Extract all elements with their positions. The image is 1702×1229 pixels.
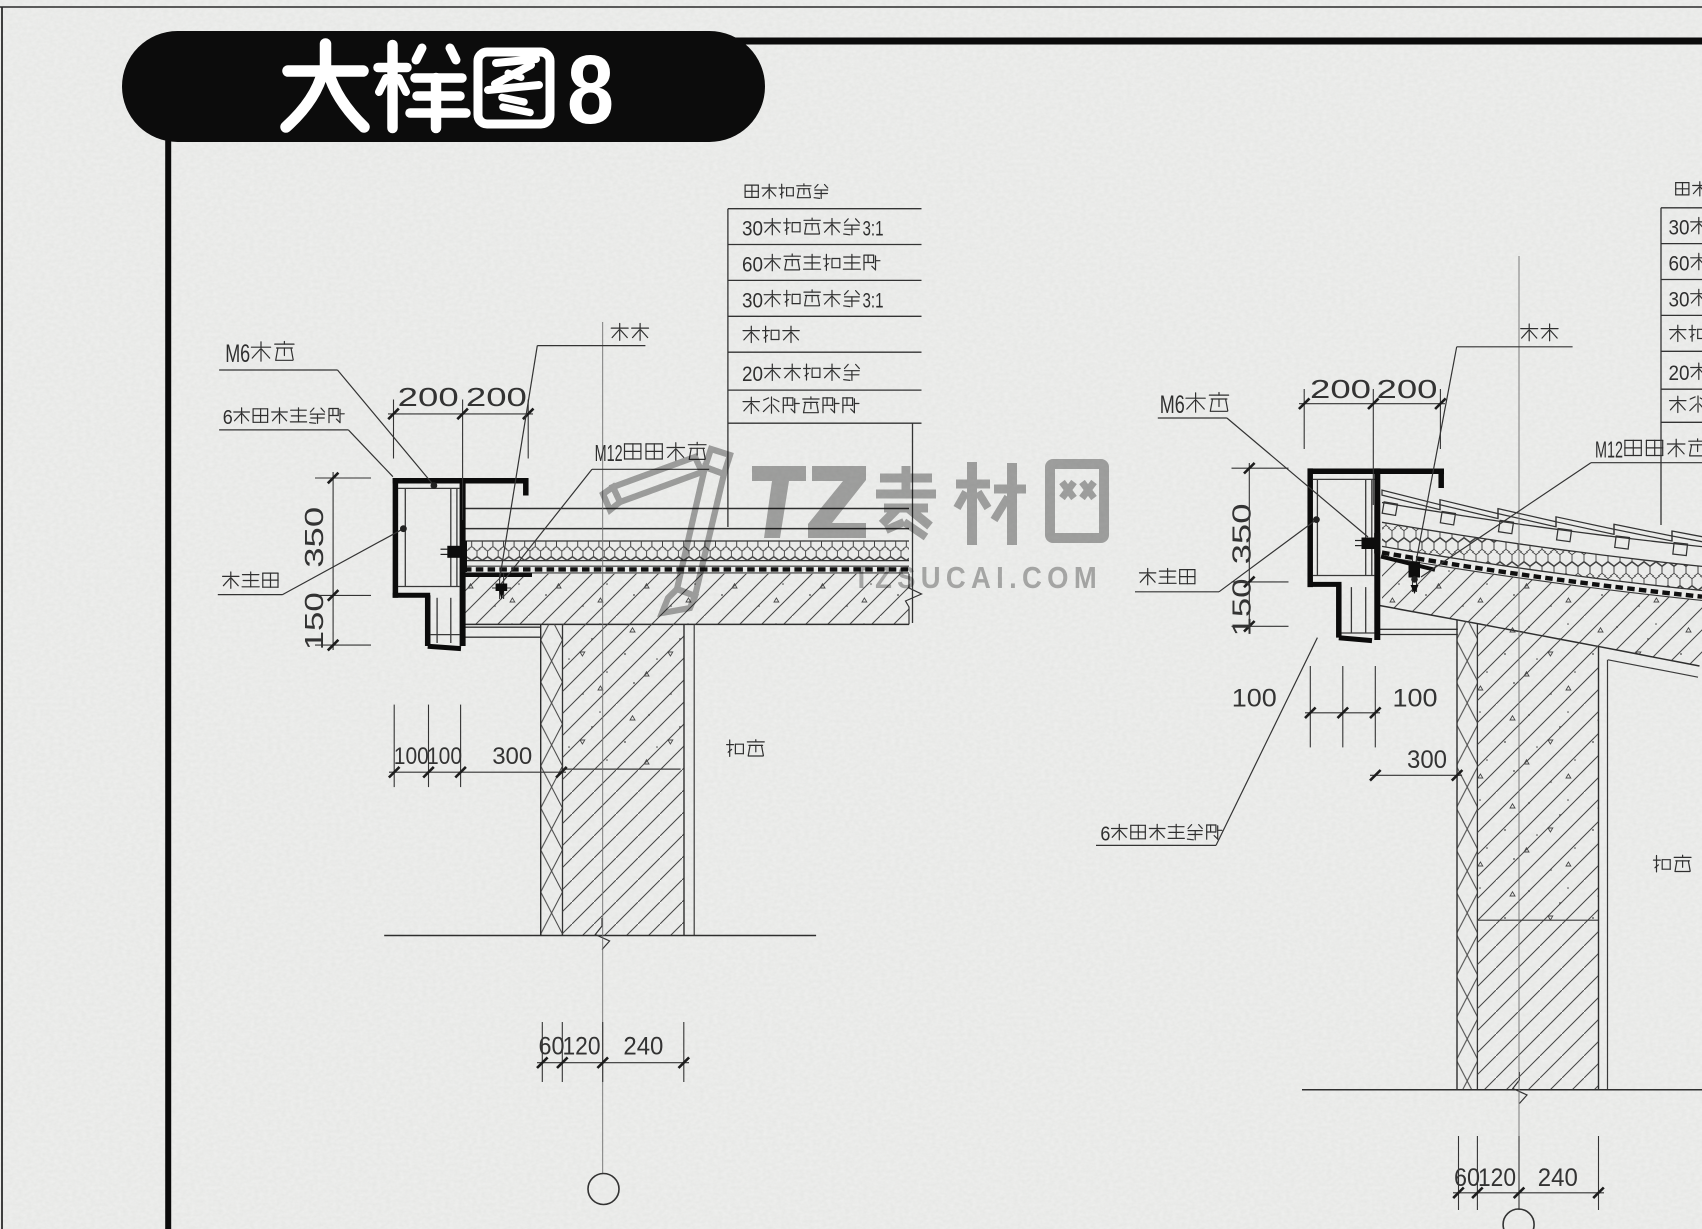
svg-text:M6: M6 bbox=[1160, 392, 1185, 419]
svg-text:20: 20 bbox=[1669, 362, 1690, 385]
svg-text:3:1: 3:1 bbox=[863, 218, 884, 241]
svg-text:100: 100 bbox=[427, 743, 462, 770]
svg-text:3:1: 3:1 bbox=[863, 289, 884, 312]
svg-text:200: 200 bbox=[466, 382, 527, 412]
svg-text:6: 6 bbox=[1100, 824, 1110, 846]
svg-text:200: 200 bbox=[398, 382, 459, 412]
svg-text:350: 350 bbox=[299, 507, 329, 568]
svg-text:30: 30 bbox=[742, 218, 763, 241]
svg-text:30: 30 bbox=[1669, 217, 1690, 240]
svg-text:240: 240 bbox=[1538, 1164, 1578, 1192]
svg-text:60: 60 bbox=[1454, 1164, 1480, 1192]
svg-text:20: 20 bbox=[742, 363, 763, 386]
svg-text:200: 200 bbox=[1310, 374, 1371, 404]
svg-text:30: 30 bbox=[1669, 288, 1690, 311]
svg-text:120: 120 bbox=[1478, 1164, 1516, 1192]
svg-text:200: 200 bbox=[1377, 374, 1438, 404]
svg-text:150: 150 bbox=[1227, 579, 1257, 637]
svg-text:30: 30 bbox=[742, 289, 763, 312]
svg-text:350: 350 bbox=[1227, 503, 1257, 564]
svg-text:240: 240 bbox=[623, 1033, 663, 1061]
svg-text:TZSUCAI.COM: TZSUCAI.COM bbox=[853, 560, 1102, 595]
svg-text:300: 300 bbox=[492, 743, 532, 770]
svg-text:120: 120 bbox=[563, 1033, 601, 1061]
svg-text:M12: M12 bbox=[1595, 437, 1623, 463]
svg-text:60: 60 bbox=[742, 253, 763, 276]
svg-text:6: 6 bbox=[223, 407, 233, 429]
svg-text:8: 8 bbox=[567, 35, 614, 144]
svg-text:100: 100 bbox=[394, 743, 429, 770]
svg-text:150: 150 bbox=[299, 592, 329, 650]
svg-text:M6: M6 bbox=[225, 341, 250, 368]
svg-text:60: 60 bbox=[539, 1033, 565, 1061]
svg-text:100: 100 bbox=[1393, 685, 1438, 713]
svg-text:60: 60 bbox=[1669, 252, 1690, 275]
svg-text:100: 100 bbox=[1232, 685, 1277, 713]
svg-text:300: 300 bbox=[1407, 746, 1447, 774]
svg-text:M12: M12 bbox=[595, 440, 623, 466]
